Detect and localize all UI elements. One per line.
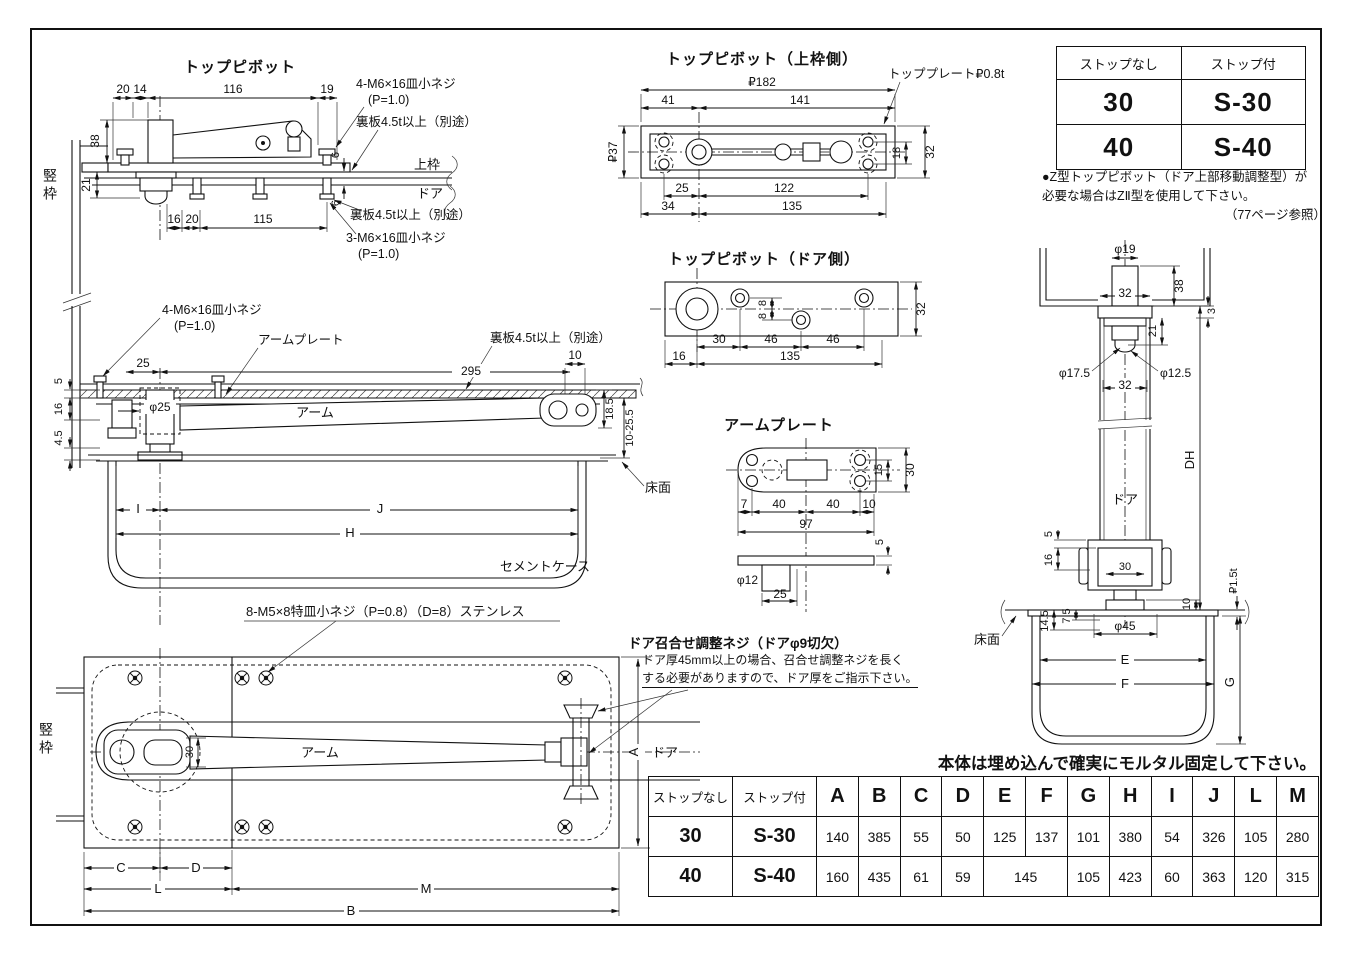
dim-label: I — [136, 501, 140, 516]
table-cell-merged-EF: 145 — [984, 857, 1068, 897]
table-cell: 160 — [817, 857, 859, 897]
table-cell: 363 — [1193, 857, 1235, 897]
dim-label: ₽182 — [748, 75, 776, 89]
dim-label: 21 — [79, 178, 93, 192]
column-header: I — [1151, 777, 1193, 817]
dim-label: 135 — [782, 199, 802, 213]
dim-label: A — [626, 747, 641, 756]
door-screws — [190, 178, 334, 199]
column-header: ストップなし — [649, 777, 733, 817]
dim-label: E — [1121, 652, 1130, 667]
note-line: ドア召合せ調整ネジ（ドアφ9切欠） — [628, 632, 964, 652]
z-type-note: ●Z型トップピボット（ドア上部移動調整型）が 必要な場合はZⅡ型を使用して下さい… — [1042, 168, 1326, 224]
part-label: 床面 — [645, 480, 671, 495]
figure-title: アームプレート — [724, 417, 834, 434]
dim-label: 25 — [136, 356, 150, 370]
dim-label: 18.5 — [604, 398, 616, 419]
mortar-fixing-note: 本体は埋め込んで確実にモルタル固定して下さい。 — [640, 750, 1316, 774]
dim-label: 16 — [53, 403, 65, 415]
column-header: F — [1026, 777, 1068, 817]
dim-label: 40 — [826, 497, 840, 511]
dim-label: 8 — [757, 300, 769, 306]
table-cell: 120 — [1235, 857, 1277, 897]
table-cell: 55 — [900, 817, 942, 857]
column-header: ストップなし — [1057, 47, 1182, 80]
dim-label: φ17.5 — [1059, 366, 1090, 380]
dim-label: 19 — [320, 82, 334, 96]
dim-label: 41 — [661, 93, 675, 107]
column-header: H — [1109, 777, 1151, 817]
table-cell: 60 — [1151, 857, 1193, 897]
dim-label: 10 — [1181, 598, 1193, 610]
dim-label: 38 — [1172, 279, 1186, 293]
note-line: ●Z型トップピボット（ドア上部移動調整型）が — [1042, 168, 1326, 187]
dim-label: 16 — [1043, 554, 1055, 566]
dim-label: 32 — [923, 145, 937, 159]
part-label: 4-M6×16皿小ネジ — [356, 77, 456, 91]
dim-label: 38 — [88, 134, 102, 148]
model-cell: S-30 — [1181, 80, 1306, 125]
table-row: 30 S-30 140 385 55 50 125 137 101 380 54… — [649, 817, 1319, 857]
table-cell: S-40 — [733, 857, 817, 897]
dim-label: DH — [1182, 451, 1197, 470]
dim-label: φ12.5 — [1160, 366, 1191, 380]
part-label: 3-M6×16皿小ネジ — [346, 231, 446, 245]
table-cell: 380 — [1109, 817, 1151, 857]
top-pivot-section-figure: トップピボット 20 14 116 19 38 21 6 6 16 — [79, 59, 477, 261]
dim-label: 7.5 — [1061, 608, 1073, 623]
part-label: 床面 — [974, 632, 1000, 647]
dim-label: 20 — [116, 82, 130, 96]
table-cell: 435 — [858, 857, 900, 897]
table-cell: 105 — [1067, 857, 1109, 897]
dim-label: 14.5 — [1039, 610, 1051, 631]
dim-label: 16 — [167, 212, 181, 226]
dim-label: 122 — [774, 181, 794, 195]
column-header: B — [858, 777, 900, 817]
dim-label: H — [345, 525, 354, 540]
part-label: 4-M6×16皿小ネジ — [162, 303, 262, 317]
table-cell: 137 — [1026, 817, 1068, 857]
table-cell: 30 — [649, 817, 733, 857]
dim-label: 5 — [1043, 531, 1055, 537]
dim-label: φ25 — [149, 400, 170, 414]
table-cell: 315 — [1277, 857, 1319, 897]
dim-label: 16 — [672, 349, 686, 363]
part-label: 裏板4.5t以上（別途） — [490, 330, 611, 345]
dim-label: M — [421, 881, 432, 896]
column-header: M — [1277, 777, 1319, 817]
dim-label: G — [1222, 677, 1237, 687]
dim-label: φ19 — [1114, 242, 1135, 256]
column-header: A — [817, 777, 859, 817]
table-cell: 140 — [817, 817, 859, 857]
dim-label: 25 — [675, 181, 689, 195]
figure-title: トップピボット — [184, 59, 296, 76]
dim-label: L — [154, 881, 161, 896]
dim-label: 25 — [773, 587, 787, 601]
adjust-screw-note: ドア召合せ調整ネジ（ドアφ9切欠） ドア厚45mm以上の場合、召合せ調整ネジを長… — [628, 632, 964, 688]
dim-label: φ45 — [1114, 619, 1135, 633]
door-elevation-figure: ドア φ19 32 38 3 21 φ17.5 φ12.5 32 DH 30 5… — [974, 240, 1249, 744]
dim-label: J — [377, 501, 384, 516]
dimension-table: ストップなし ストップ付 A B C D E F G H I J L M 30 … — [648, 776, 1319, 897]
table-cell: 59 — [942, 857, 984, 897]
part-label: (P=1.0) — [358, 247, 399, 261]
cement-case-plan-figure: 8-M5×8特皿小ネジ（P=0.8）（D=8）ステンレス 30 アーム — [56, 604, 700, 918]
table-cell: 125 — [984, 817, 1026, 857]
top-pivot-frame-plate-figure: トップピボット（上枠側） トッププレート₽0.8t ₽182 41 141 ₽3… — [606, 50, 1005, 222]
part-label: ドア — [1112, 492, 1138, 507]
dim-label: 116 — [223, 82, 242, 96]
dim-label: 5 — [874, 539, 886, 545]
dim-label: 30 — [712, 332, 726, 346]
part-label: 8-M5×8特皿小ネジ（P=0.8）（D=8）ステンレス — [246, 604, 525, 619]
column-header: J — [1193, 777, 1235, 817]
top-pivot-door-plate-figure: トップピボット（ドア側） 8 8 32 30 46 46 16 135 — [650, 250, 928, 368]
dim-label: 97 — [799, 517, 813, 531]
dim-label: 20 — [185, 212, 199, 226]
note-line: ドア厚45mm以上の場合、召合せ調整ネジを長く — [642, 652, 964, 669]
floor-hinge-section-figure: 4-M6×16皿小ネジ (P=1.0) アームプレート 裏板4.5t以上（別途）… — [53, 303, 671, 625]
table-cell: 105 — [1235, 817, 1277, 857]
column-header: C — [900, 777, 942, 817]
table-cell: S-30 — [733, 817, 817, 857]
dim-label: C — [116, 860, 125, 875]
dim-label: B — [347, 903, 356, 918]
dim-label: 34 — [661, 199, 675, 213]
table-cell: 40 — [649, 857, 733, 897]
part-label: 上枠 — [414, 157, 440, 172]
part-label: アーム — [301, 745, 339, 760]
dim-label: 32 — [1118, 378, 1132, 392]
figure-title: トップピボット（上枠側） — [666, 50, 858, 68]
dim-label: ₽37 — [606, 141, 620, 162]
dim-label: 32 — [914, 302, 928, 316]
arm-plate-figure: アームプレート 15 30 7 40 40 10 97 φ12 25 5 — [724, 417, 917, 612]
column-header: G — [1067, 777, 1109, 817]
note-line: する必要がありますので、ドア厚をご指示下さい。 — [642, 670, 918, 688]
dim-label: φ12 — [737, 573, 758, 587]
dim-label: 10-25.5 — [624, 409, 636, 446]
column-header: ストップ付 — [733, 777, 817, 817]
column-header: ストップ付 — [1181, 47, 1306, 80]
column-header: E — [984, 777, 1026, 817]
part-label: トッププレート₽0.8t — [888, 67, 1005, 81]
table-cell: 101 — [1067, 817, 1109, 857]
table-row: 40 S-40 160 435 61 59 145 105 423 60 363… — [649, 857, 1319, 897]
catalog-page: トップピボット 20 14 116 19 38 21 6 6 16 — [0, 0, 1350, 954]
note-line: 必要な場合はZⅡ型を使用して下さい。 — [1042, 187, 1326, 206]
part-label: ドア — [417, 186, 443, 201]
dim-label: D — [191, 860, 200, 875]
table-cell: 61 — [900, 857, 942, 897]
column-header: L — [1235, 777, 1277, 817]
dim-label: 30 — [1119, 561, 1131, 573]
table-cell: 385 — [858, 817, 900, 857]
dim-label: 115 — [253, 212, 272, 226]
model-number-table: ストップなし ストップ付 30 S-30 40 S-40 — [1056, 46, 1306, 170]
table-cell: 50 — [942, 817, 984, 857]
dim-label: F — [1121, 676, 1129, 691]
dim-label: 21 — [1147, 325, 1159, 337]
dim-label: 40 — [772, 497, 786, 511]
part-label: アーム — [296, 405, 334, 420]
table-cell: 423 — [1109, 857, 1151, 897]
dim-label: 30 — [184, 746, 196, 758]
model-cell: 30 — [1057, 80, 1182, 125]
dim-label: 7 — [741, 497, 748, 511]
part-label: アームプレート — [258, 333, 344, 347]
column-header: D — [942, 777, 984, 817]
part-label: (P=1.0) — [368, 93, 409, 107]
dim-label: 10 — [862, 497, 876, 511]
part-label: 裏板4.5t以上（別途） — [356, 114, 477, 129]
dim-label: 4.5 — [53, 430, 65, 445]
table-header-row: ストップなし ストップ付 A B C D E F G H I J L M — [649, 777, 1319, 817]
dim-label: 10 — [568, 348, 582, 362]
dim-label: 46 — [764, 332, 778, 346]
dim-label: 46 — [826, 332, 840, 346]
table-cell: 280 — [1277, 817, 1319, 857]
model-cell: S-40 — [1181, 125, 1306, 170]
table-cell: 54 — [1151, 817, 1193, 857]
note-line: （77ページ参照） — [1042, 206, 1326, 225]
dim-label: 14 — [133, 82, 147, 96]
dim-label: 3 — [1206, 308, 1218, 314]
dim-label: ₽1.5t — [1228, 568, 1240, 593]
dim-label: 30 — [903, 463, 917, 477]
dim-label: 141 — [790, 93, 810, 107]
part-label: 裏板4.5t以上（別途） — [350, 207, 471, 222]
dim-label: 5 — [53, 378, 65, 384]
dim-label: 135 — [780, 349, 800, 363]
table-cell: 326 — [1193, 817, 1235, 857]
dim-label: 15 — [873, 464, 885, 476]
dim-label: 32 — [1118, 286, 1132, 300]
dim-label: 8 — [757, 313, 769, 319]
dim-label: 6 — [330, 152, 342, 158]
figure-title: トップピボット（ドア側） — [668, 250, 860, 268]
dim-label: 18 — [891, 147, 903, 159]
part-label: (P=1.0) — [174, 319, 215, 333]
dim-label: 295 — [461, 364, 481, 378]
part-label: セメントケース — [500, 559, 590, 574]
model-cell: 40 — [1057, 125, 1182, 170]
jamb-label-plan: 竪枠 — [36, 722, 56, 758]
jamb-label-top: 竪枠 — [40, 168, 60, 204]
